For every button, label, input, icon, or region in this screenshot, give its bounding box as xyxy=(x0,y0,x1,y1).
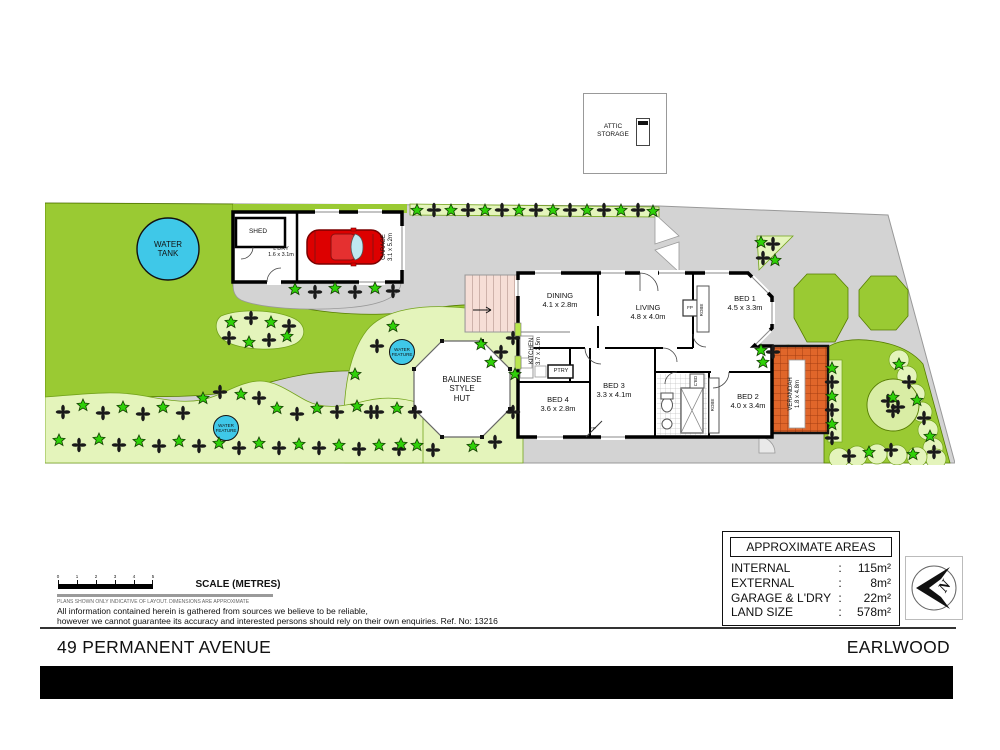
table-row: GARAGE & L'DRY : 22m² xyxy=(723,591,899,606)
property-suburb: EARLWOOD xyxy=(700,637,950,658)
disclaimer-line1: All information contained herein is gath… xyxy=(57,606,368,616)
room-bed1: BED 1 4.5 x 3.3m xyxy=(705,295,785,313)
disclaimer-line2: however we cannot guarantee its accuracy… xyxy=(57,616,498,626)
disclaimer-tiny: PLANS SHOWN ONLY INDICATIVE OF LAYOUT. D… xyxy=(57,600,249,606)
room-dining: DINING 4.1 x 2.8m xyxy=(520,292,600,310)
north-arrow-icon: N xyxy=(906,557,962,619)
table-row: EXTERNAL : 8m² xyxy=(723,576,899,591)
cupboard-label: C'BD xyxy=(693,367,701,395)
balinese-hut-label: BALINESE STYLE HUT xyxy=(427,375,497,403)
floorplan-sheet: ATTIC STORAGE WATER TANK SHED L'DRY 1.6 … xyxy=(0,0,1000,750)
footer-black-bar xyxy=(40,666,953,699)
room-bed2: BED 2 4.0 x 3.4m xyxy=(708,393,788,411)
shed-label: SHED xyxy=(234,228,282,236)
room-living: LIVING 4.8 x 4.0m xyxy=(608,304,688,322)
room-bed4: BED 4 3.6 x 2.8m xyxy=(518,396,598,414)
site-plan xyxy=(45,198,955,465)
footer-divider xyxy=(40,627,956,629)
water-feature-label-2: WATER FEATURE xyxy=(208,423,244,434)
rule-line xyxy=(57,594,273,597)
areas-title: APPROXIMATE AREAS xyxy=(730,537,892,557)
attic-storage-label: ATTIC STORAGE xyxy=(585,123,641,138)
robe-label-2: ROBE xyxy=(710,385,718,425)
attic-ladder-icon xyxy=(636,118,650,146)
water-feature-label-1: WATER FEATURE xyxy=(384,347,420,358)
scale-bar xyxy=(58,584,153,589)
fireplace-label-2: FP xyxy=(585,426,601,431)
north-compass: N xyxy=(905,556,963,620)
room-kitchen: KITCHEN 3.7 x 2.5m xyxy=(529,316,547,386)
property-address: 49 PERMANENT AVENUE xyxy=(57,637,271,658)
room-verandah: VERANDAH 1.8 x 4.8m xyxy=(788,359,806,429)
water-tank-label: WATER TANK xyxy=(138,240,198,259)
table-row: LAND SIZE : 578m² xyxy=(723,605,899,620)
scale-label: SCALE (METRES) xyxy=(186,579,290,591)
approximate-areas-table: APPROXIMATE AREAS INTERNAL : 115m² EXTER… xyxy=(722,531,900,626)
robe-label-1: ROBE xyxy=(699,290,707,330)
pantry-label: PTRY xyxy=(549,368,573,374)
laundry-label: L'DRY 1.6 x 3.1m xyxy=(258,246,304,259)
garage-label: GARAGE 3.1 x 5.2m xyxy=(381,212,399,282)
fireplace-label-1: FP xyxy=(682,305,698,310)
table-row: INTERNAL : 115m² xyxy=(723,561,899,576)
